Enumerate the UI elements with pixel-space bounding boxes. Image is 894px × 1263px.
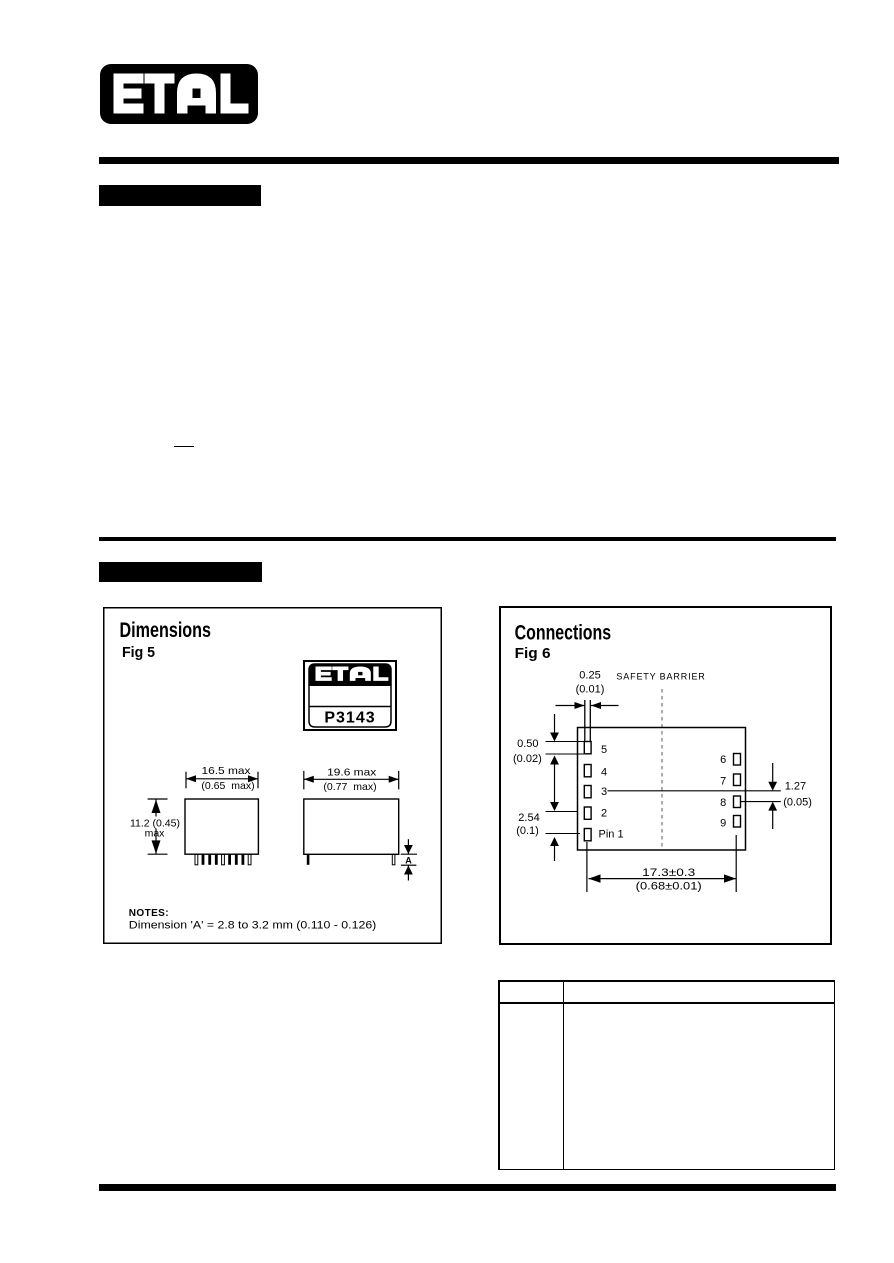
- svg-text:1.27: 1.27: [785, 781, 806, 793]
- svg-text:Dimension 'A' = 2.8 to 3.: Dimension 'A' = 2.8 to 3.2 mm (0.110 - 0…: [129, 920, 376, 932]
- svg-text:NOTES:: NOTES:: [129, 908, 169, 919]
- svg-text:5: 5: [601, 744, 607, 756]
- svg-text:max: max: [145, 827, 166, 839]
- svg-text:4: 4: [601, 767, 607, 779]
- svg-text:9: 9: [720, 817, 726, 829]
- svg-text:(0.01): (0.01): [576, 684, 605, 696]
- svg-text:19.6 max: 19.6 max: [327, 766, 377, 778]
- svg-text:2: 2: [601, 808, 607, 820]
- svg-text:A: A: [405, 856, 412, 866]
- svg-text:8: 8: [720, 797, 726, 809]
- svg-text:SAFETY BARRIER: SAFETY BARRIER: [616, 672, 705, 682]
- svg-text:17.3±0.3: 17.3±0.3: [642, 867, 695, 879]
- svg-text:(0.65 max): (0.65 max): [201, 780, 254, 792]
- svg-text:P3143: P3143: [324, 710, 375, 727]
- svg-text:6: 6: [720, 754, 726, 766]
- svg-text:(0.77 max): (0.77 max): [323, 781, 376, 793]
- svg-text:(0.05): (0.05): [783, 797, 812, 809]
- svg-text:0.25: 0.25: [579, 670, 600, 682]
- svg-text:Dimensions: Dimensions: [120, 619, 212, 642]
- svg-text:Connections: Connections: [515, 622, 612, 645]
- svg-text:Pin 1: Pin 1: [599, 829, 624, 841]
- svg-text:0.50: 0.50: [517, 738, 538, 750]
- svg-text:16.5 max: 16.5 max: [202, 765, 252, 777]
- svg-text:Fig 6: Fig 6: [515, 645, 551, 662]
- svg-text:2.54: 2.54: [518, 812, 539, 824]
- svg-text:7: 7: [720, 775, 726, 787]
- svg-text:Fig 5: Fig 5: [122, 644, 155, 661]
- svg-text:(0.1): (0.1): [516, 825, 539, 837]
- svg-text:(0.02): (0.02): [513, 753, 542, 765]
- svg-text:3: 3: [601, 786, 607, 798]
- svg-text:(0.68±0.01): (0.68±0.01): [636, 881, 702, 893]
